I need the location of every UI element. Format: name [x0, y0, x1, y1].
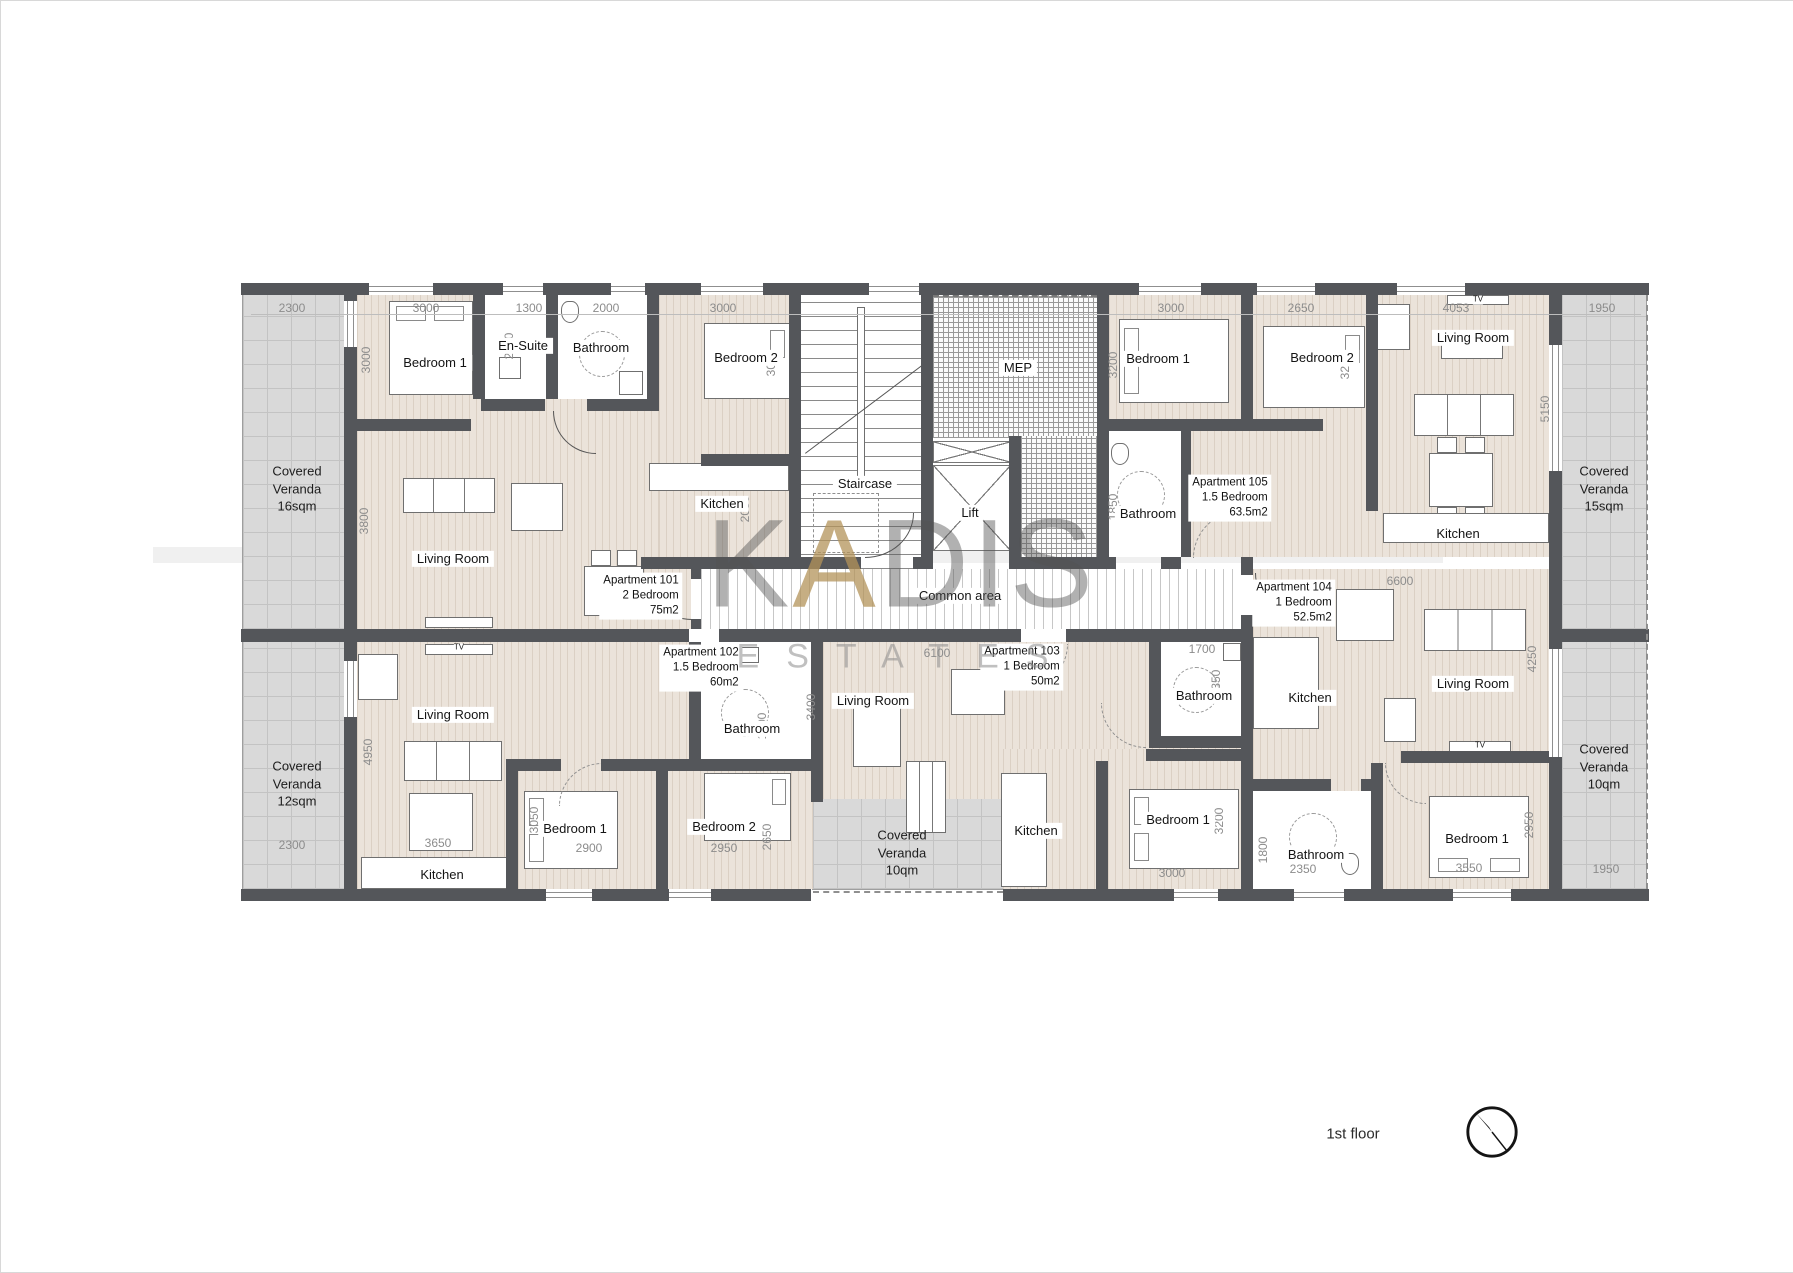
apt103-label: Apartment 103 1 Bedroom 50m2 — [980, 644, 1063, 691]
apt101-bathroom-label: Bathroom — [568, 340, 634, 356]
dim-a103-w: 6100 — [924, 646, 951, 660]
dim-a105-bed1-h: 3200 — [1106, 352, 1120, 379]
tv-label: TV — [1475, 742, 1485, 751]
dim-a105-bed1-w: 3000 — [1158, 301, 1185, 315]
tv-label: TV — [1473, 296, 1483, 305]
apt102-type: 1.5 Bedroom — [673, 662, 739, 674]
apt104-label: Apartment 104 1 Bedroom 52.5m2 — [1252, 580, 1335, 627]
dim-a101-living-h: 3800 — [357, 508, 371, 535]
apt101-kitchen-label: Kitchen — [695, 496, 748, 512]
window — [1139, 283, 1201, 295]
apt104-name: Apartment 104 — [1256, 582, 1331, 594]
apt104-dining-table — [1336, 589, 1394, 641]
apt104-sofa — [1424, 609, 1526, 651]
wall — [1149, 642, 1161, 748]
wall — [719, 629, 1021, 642]
apt103-table — [853, 701, 901, 767]
dim-a103-bed1-w: 3000 — [1159, 866, 1186, 880]
staircase-rail — [857, 307, 865, 481]
apt101-ensuite-label: En-Suite — [493, 338, 553, 354]
apt105-label: Apartment 105 1.5 Bedroom 63.5m2 — [1188, 475, 1271, 522]
apt103-sofa — [906, 761, 946, 833]
apt103-kitchen-label: Kitchen — [1009, 823, 1062, 839]
wall — [1066, 629, 1253, 642]
wall — [1253, 779, 1331, 791]
toilet-icon — [1111, 443, 1129, 465]
apt105-bedroom2-label: Bedroom 2 — [1285, 350, 1359, 366]
wall — [1096, 761, 1108, 889]
wall — [1149, 736, 1253, 748]
dim-a101-bed1-w: 3000 — [413, 301, 440, 315]
apt105-chair — [1437, 437, 1457, 453]
apt104-kitchen-counter — [1253, 637, 1319, 729]
dim-v15-width: 1950 — [1589, 301, 1616, 315]
veranda-sw-label: CoveredVeranda12sqm — [272, 758, 321, 811]
toilet-icon — [561, 301, 579, 323]
apt105-armchair — [1374, 304, 1410, 350]
wall — [481, 399, 545, 411]
apt102-name: Apartment 102 — [663, 647, 738, 659]
apt104-type: 1 Bedroom — [1275, 597, 1331, 609]
window — [701, 283, 763, 295]
lift-door-box — [933, 441, 1011, 463]
apt102-label: Apartment 102 1.5 Bedroom 60m2 — [659, 645, 742, 692]
wall — [1241, 295, 1253, 431]
apt101-chair — [617, 550, 637, 566]
apt102-bedroom1-label: Bedroom 1 — [538, 821, 612, 837]
apt102-armchair — [358, 654, 398, 700]
wall-apt102-103 — [811, 642, 823, 802]
mep-area-lower — [1021, 436, 1097, 569]
apt101-tv-unit — [425, 617, 493, 628]
wall — [1401, 751, 1549, 763]
window — [1257, 283, 1315, 295]
dim-a101-ensuite-w: 1300 — [516, 301, 543, 315]
dim-a104-w: 6600 — [1387, 574, 1414, 588]
apt103-bedroom1-label: Bedroom 1 — [1141, 812, 1215, 828]
wall — [587, 399, 659, 411]
window — [669, 889, 711, 901]
apt105-chair — [1465, 437, 1485, 453]
apt105-dining-table — [1429, 453, 1493, 507]
wall-staircase-right — [921, 295, 933, 569]
window — [1294, 889, 1344, 901]
wall — [473, 295, 485, 399]
apt103-living-label: Living Room — [832, 693, 914, 709]
apt101-type: 2 Bedroom — [622, 590, 678, 602]
window — [1549, 649, 1562, 757]
apt102-bedroom2-label: Bedroom 2 — [687, 819, 761, 835]
wall — [1241, 557, 1253, 575]
apt105-sofa — [1414, 394, 1514, 436]
wall — [1253, 419, 1323, 431]
window — [344, 301, 357, 347]
dim-a102-living-h: 4950 — [361, 739, 375, 766]
sink-icon — [1223, 643, 1241, 661]
veranda-se-label: CoveredVeranda10qm — [1579, 741, 1628, 794]
wall — [601, 759, 813, 771]
apt105-area: 63.5m2 — [1229, 506, 1267, 518]
dim-a103-living-h: 3400 — [804, 694, 818, 721]
wall — [1109, 419, 1241, 431]
window — [1453, 889, 1511, 901]
dim-v12-width: 2300 — [279, 838, 306, 852]
dim-a102-kitchen-w: 3650 — [425, 836, 452, 850]
dim-a104-bed1-w: 3550 — [1456, 861, 1483, 875]
window — [344, 661, 357, 717]
mep-label: MEP — [999, 360, 1037, 376]
apt102-area: 60m2 — [710, 676, 739, 688]
dimension-line-top — [251, 314, 1641, 315]
apt103-bathroom-label: Bathroom — [1171, 688, 1237, 704]
dim-a101-bed1-h: 3000 — [359, 347, 373, 374]
wall — [647, 295, 659, 411]
wall-veranda-stub-right — [1549, 629, 1649, 642]
apt105-bathroom-label: Bathroom — [1115, 506, 1181, 522]
apt103-name: Apartment 103 — [984, 646, 1059, 658]
dim-v10-width: 1950 — [1593, 862, 1620, 876]
window — [369, 283, 433, 295]
apt101-chair — [591, 550, 611, 566]
apt101-area: 75m2 — [650, 604, 679, 616]
dim-a101-bed2-w: 3000 — [710, 301, 737, 315]
apt105-type: 1.5 Bedroom — [1202, 492, 1268, 504]
dim-a103-bath-w: 1700 — [1189, 642, 1216, 656]
dim-a104-bath-h: 1800 — [1256, 837, 1270, 864]
floor-title: 1st floor — [1326, 1126, 1379, 1143]
wall — [506, 759, 561, 771]
apt104-area: 52.5m2 — [1293, 611, 1331, 623]
wall-left — [344, 295, 357, 889]
apt105-name: Apartment 105 — [1192, 477, 1267, 489]
veranda-nw-label: CoveredVeranda16sqm — [272, 463, 321, 516]
apt104-living-label: Living Room — [1432, 676, 1514, 692]
dim-v16-width: 2300 — [279, 301, 306, 315]
window — [1397, 283, 1465, 295]
wall — [1361, 779, 1371, 791]
wall — [691, 569, 701, 579]
dim-a104-living-h: 4250 — [1525, 646, 1539, 673]
wall-veranda-stub-left — [241, 629, 357, 642]
dim-a101-bath-w: 2000 — [593, 301, 620, 315]
wall — [701, 454, 801, 466]
apt104-kitchen-label: Kitchen — [1283, 690, 1336, 706]
apt103-area: 50m2 — [1031, 675, 1060, 687]
veranda-ne-label: CoveredVeranda15sqm — [1579, 463, 1628, 516]
apt101-label: Apartment 101 2 Bedroom 75m2 — [599, 573, 682, 620]
lift-label: Lift — [956, 505, 983, 521]
apt104-armchair — [1384, 698, 1416, 742]
wall — [913, 557, 933, 569]
apt102-living-label: Living Room — [412, 707, 494, 723]
apt102-sofa — [404, 741, 502, 781]
wall-bottom-left — [241, 889, 811, 901]
shower-icon — [499, 357, 521, 379]
apt104-bathroom-label: Bathroom — [1283, 847, 1349, 863]
apt101-sofa — [403, 478, 495, 513]
dim-a105-bed2-w: 2650 — [1288, 301, 1315, 315]
apt103-type: 1 Bedroom — [1003, 661, 1059, 673]
dim-a104-bath-w: 2350 — [1290, 862, 1317, 876]
apt101-bed1 — [389, 301, 473, 395]
apt104-bedroom1-label: Bedroom 1 — [1440, 831, 1514, 847]
apt101-table — [511, 483, 563, 531]
wall — [1009, 557, 1116, 569]
wall-staircase-left — [789, 295, 801, 569]
veranda-south-dashed-edge — [813, 891, 1003, 893]
apt101-name: Apartment 101 — [603, 575, 678, 587]
dim-a104-bed1-h: 2950 — [1522, 812, 1536, 839]
dim-a105-living-h: 5150 — [1538, 396, 1552, 423]
dim-a102-bed2-w: 2950 — [711, 841, 738, 855]
tv-label: TV — [454, 644, 464, 653]
apt102-kitchen-label: Kitchen — [415, 867, 468, 883]
veranda-south-label: CoveredVeranda10qm — [877, 827, 926, 880]
apt101-bedroom2-label: Bedroom 2 — [709, 350, 783, 366]
north-compass-icon — [1463, 1103, 1521, 1166]
wall — [656, 771, 668, 889]
dim-a102-bed2-h: 2650 — [760, 824, 774, 851]
wall-mep-right — [1097, 295, 1109, 569]
wall-corridor-bottom — [357, 629, 689, 642]
apt101-bedroom1-label: Bedroom 1 — [398, 355, 472, 371]
dim-a102-bed1-w: 2900 — [576, 841, 603, 855]
floor-plan-page: 2300 3000 1300 2000 3000 3000 2650 4053 … — [0, 0, 1793, 1273]
window — [503, 283, 543, 295]
wall — [506, 771, 518, 889]
wall — [1371, 763, 1383, 889]
wall — [691, 619, 701, 629]
window — [869, 283, 919, 295]
apt105-bedroom1-label: Bedroom 1 — [1121, 351, 1195, 367]
wall-corridor-top — [641, 557, 861, 569]
apt102-bathroom-label: Bathroom — [719, 721, 785, 737]
apt105-kitchen-label: Kitchen — [1431, 526, 1484, 542]
apt101-living-label: Living Room — [412, 551, 494, 567]
shower-icon — [619, 371, 643, 395]
wall — [1161, 557, 1181, 569]
wall — [1366, 295, 1378, 511]
window — [611, 283, 645, 295]
window — [1174, 889, 1218, 901]
apt101-kitchen-counter — [649, 463, 789, 491]
staircase-label: Staircase — [833, 476, 897, 492]
veranda-outer-dashed-edge — [1646, 295, 1648, 889]
wall-lift-right — [1009, 436, 1021, 569]
apt105-living-label: Living Room — [1432, 330, 1514, 346]
dim-a105-living-w: 4053 — [1443, 301, 1470, 315]
common-area-label: Common area — [914, 588, 1006, 604]
wall — [357, 419, 471, 431]
wall — [1146, 749, 1253, 761]
window — [546, 889, 592, 901]
